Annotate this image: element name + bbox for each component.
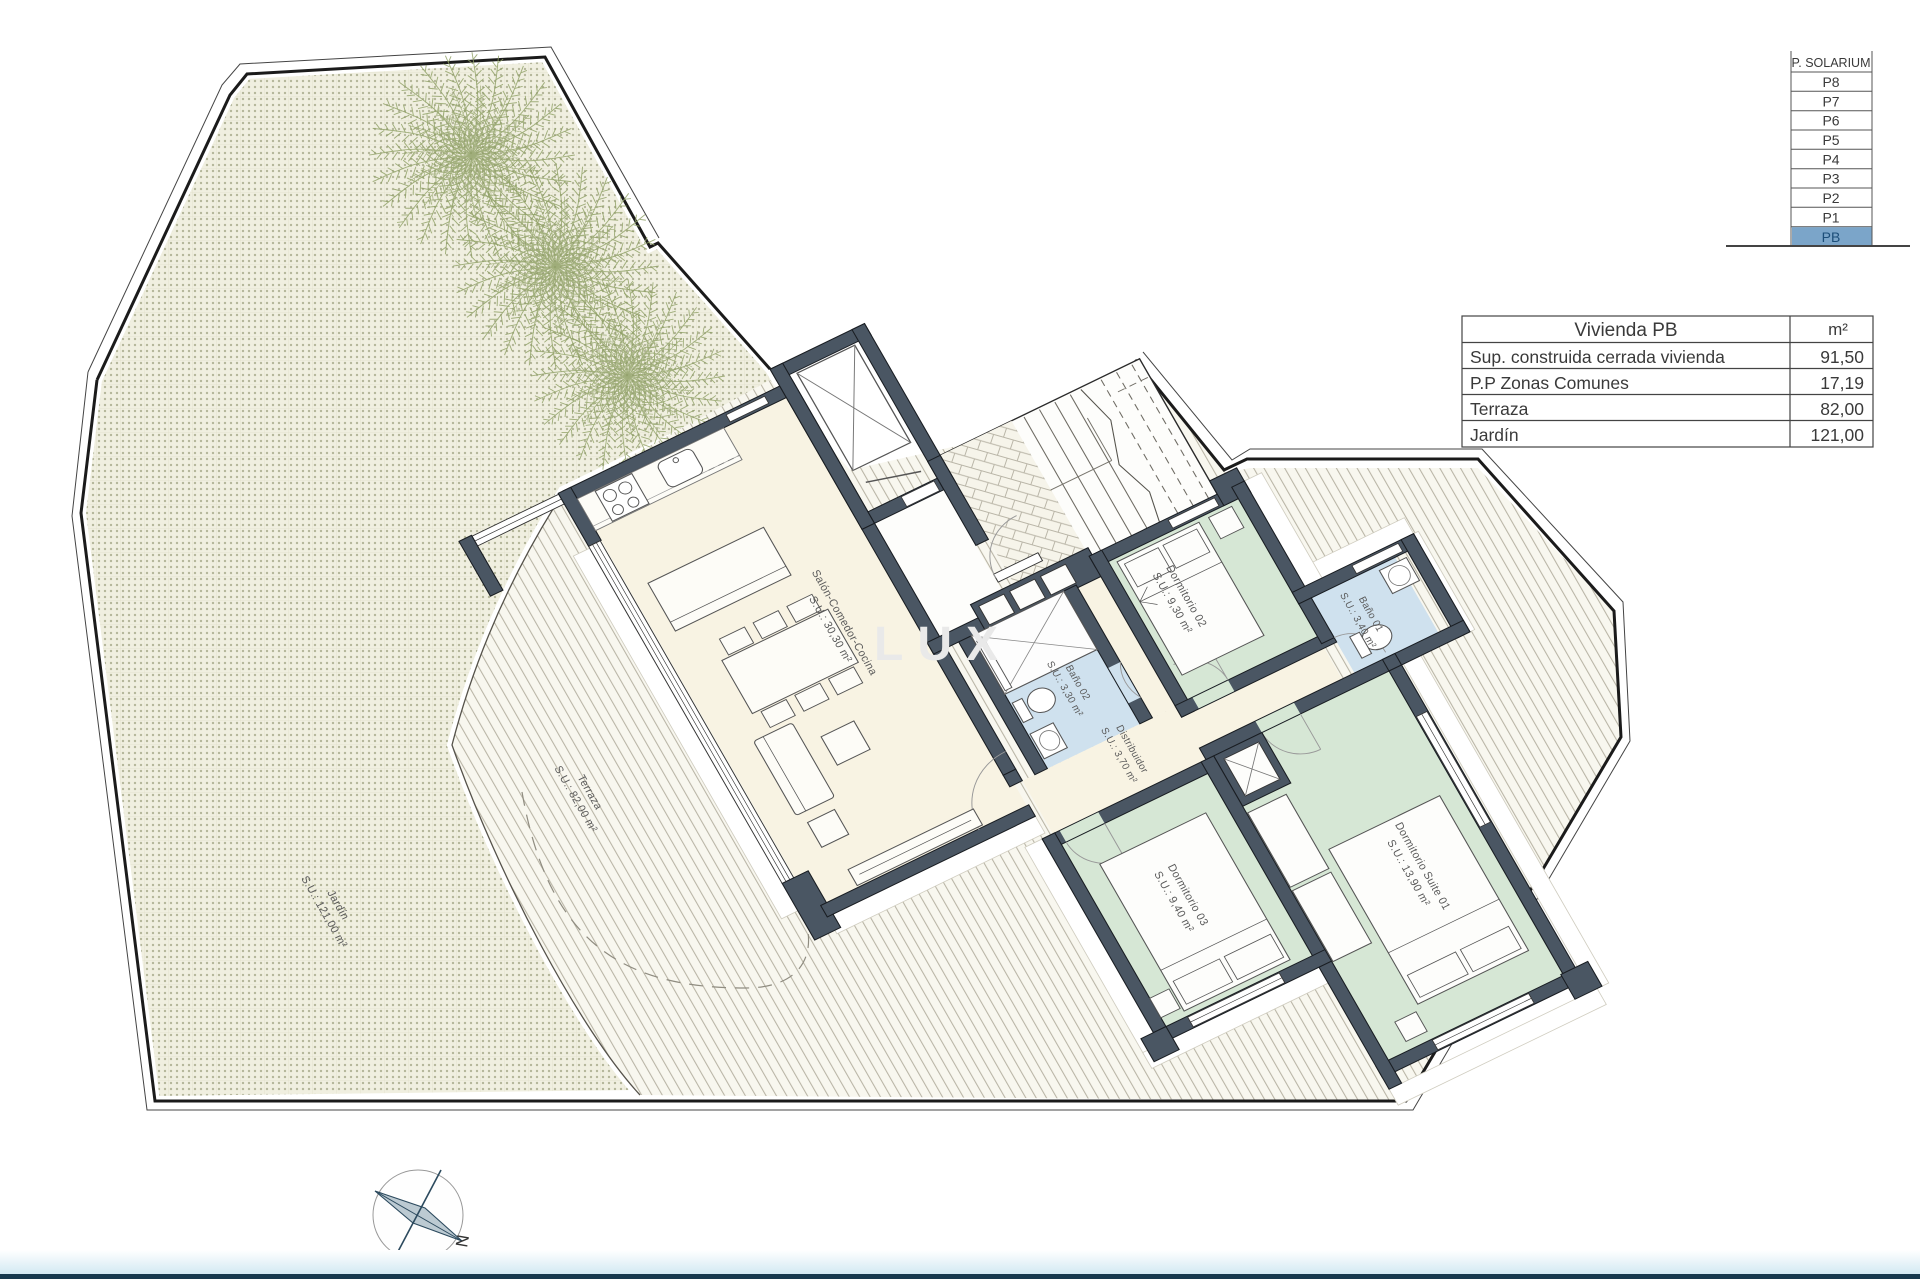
svg-text:82,00: 82,00 [1820,399,1864,419]
svg-text:P4: P4 [1822,151,1839,167]
svg-text:P5: P5 [1822,132,1839,148]
svg-text:PB: PB [1822,229,1841,245]
svg-text:LUX: LUX [874,618,1012,671]
svg-text:P.P Zonas Comunes: P.P Zonas Comunes [1470,373,1629,393]
svg-text:P3: P3 [1822,171,1839,187]
svg-text:Vivienda PB: Vivienda PB [1574,320,1677,341]
svg-text:121,00: 121,00 [1810,425,1864,445]
svg-text:m²: m² [1828,320,1848,339]
svg-text:P2: P2 [1822,190,1839,206]
svg-text:P1: P1 [1822,209,1839,225]
svg-text:17,19: 17,19 [1820,373,1864,393]
svg-text:P7: P7 [1822,93,1839,109]
svg-text:P. SOLARIUM: P. SOLARIUM [1792,56,1871,70]
svg-text:P6: P6 [1822,113,1839,129]
svg-text:Sup. construida cerrada vivien: Sup. construida cerrada vivienda [1470,347,1725,367]
svg-text:Terraza: Terraza [1470,399,1529,419]
svg-text:91,50: 91,50 [1820,347,1864,367]
svg-text:Jardín: Jardín [1470,425,1519,445]
svg-text:P8: P8 [1822,74,1839,90]
